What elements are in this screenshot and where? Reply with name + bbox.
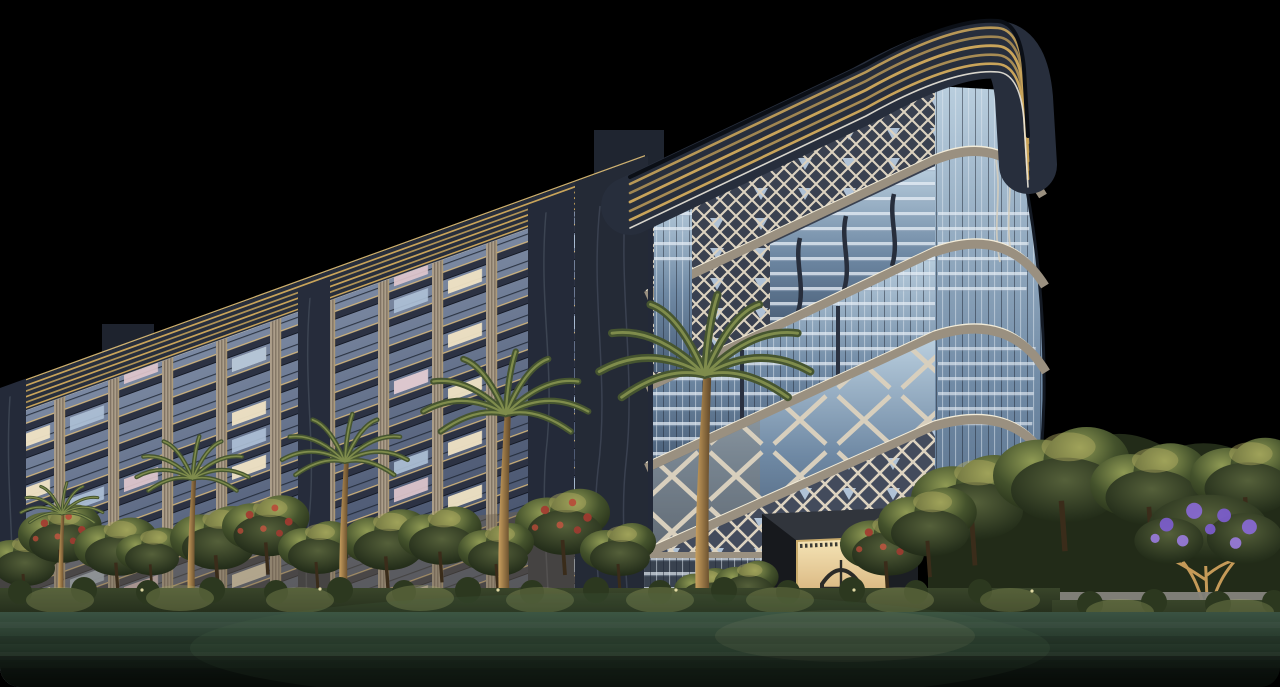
lawn-bottom-fade xyxy=(0,656,1280,687)
architectural-rendering xyxy=(0,0,1280,687)
entrance-lawn-glow xyxy=(715,610,975,662)
scene-canvas xyxy=(0,0,1280,687)
